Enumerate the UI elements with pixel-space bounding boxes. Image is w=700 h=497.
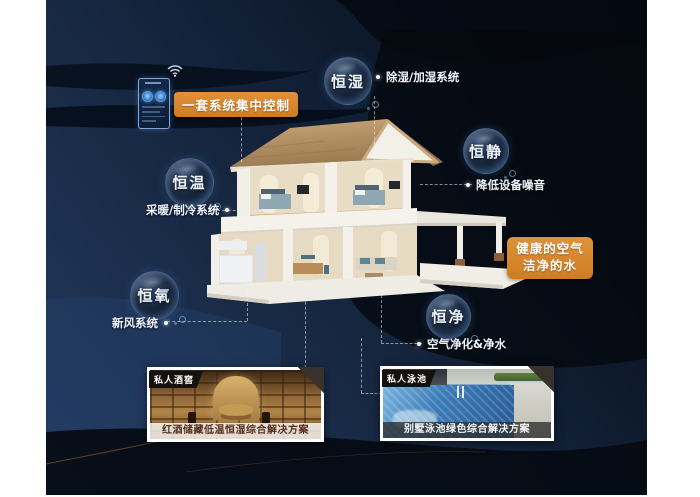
bubble-quiet: 恒静 [463, 128, 509, 174]
pool-ladder [457, 386, 459, 398]
wifi-icon [167, 64, 183, 77]
benefit-line-2: 洁净的水 [513, 258, 587, 275]
card-ribbon [298, 367, 324, 393]
connector-oxygen-v [247, 288, 248, 321]
connector-purity-h [381, 343, 422, 344]
benefit-highlight-box: 健康的空气 洁净的水 [507, 237, 593, 279]
bubble-temperature: 恒温 [165, 158, 214, 207]
connector-wine-card [305, 292, 306, 368]
connector-dot [466, 183, 470, 187]
card-pool: 私人泳池 别墅泳池绿色综合解决方案 [380, 366, 554, 441]
connector-quiet [420, 184, 472, 185]
bubble-humidity-label: 恒湿 [331, 71, 365, 92]
note-temperature: 采暖/制冷系统 [146, 202, 229, 218]
note-quiet: 降低设备噪音 [466, 177, 545, 193]
pool-card-tag: 私人泳池 [382, 370, 436, 387]
bubble-purity: 恒净 [426, 294, 471, 339]
note-purity-text: 空气净化&净水 [427, 336, 506, 352]
bubble-purity-label: 恒净 [431, 306, 465, 327]
infographic-canvas: 一套系统集中控制 健康的空气 洁净的水 恒湿 恒静 恒温 恒氧 恒净 除湿/加湿… [46, 0, 647, 495]
bubble-quiet-label: 恒静 [469, 141, 503, 162]
note-oxygen: 新风系统 [112, 315, 168, 331]
bubble-temperature-label: 恒温 [172, 172, 206, 193]
wine-card-caption: 红酒储藏低温恒湿综合解决方案 [150, 423, 321, 439]
connector-dot [376, 75, 380, 79]
connector-dot [225, 208, 229, 212]
control-highlight-box: 一套系统集中控制 [174, 92, 298, 117]
bubble-oxygen: 恒氧 [130, 271, 179, 320]
bubble-humidity: 恒湿 [324, 57, 372, 105]
connector-control [241, 112, 242, 162]
connector-pool-h [361, 393, 382, 394]
connector-purity-v [381, 280, 382, 343]
connector-pool-v [361, 338, 362, 393]
wine-card-tag: 私人酒窖 [149, 371, 203, 388]
pool-card-caption: 别墅泳池绿色综合解决方案 [383, 422, 551, 438]
connector-dot [164, 321, 168, 325]
card-ribbon [528, 366, 554, 392]
note-purity: 空气净化&净水 [417, 336, 506, 352]
note-humidity-text: 除湿/加湿系统 [386, 69, 459, 85]
card-wine-cellar: 私人酒窖 红酒储藏低温恒湿综合解决方案 [147, 367, 324, 442]
connector-dot [417, 342, 421, 346]
wine-table [219, 404, 253, 416]
note-temperature-text: 采暖/制冷系统 [146, 202, 219, 218]
note-humidity: 除湿/加湿系统 [376, 69, 459, 85]
benefit-line-1: 健康的空气 [513, 241, 587, 258]
smart-control-panel [138, 78, 170, 129]
bubble-oxygen-label: 恒氧 [137, 285, 171, 306]
note-quiet-text: 降低设备噪音 [476, 177, 545, 193]
note-oxygen-text: 新风系统 [112, 315, 158, 331]
